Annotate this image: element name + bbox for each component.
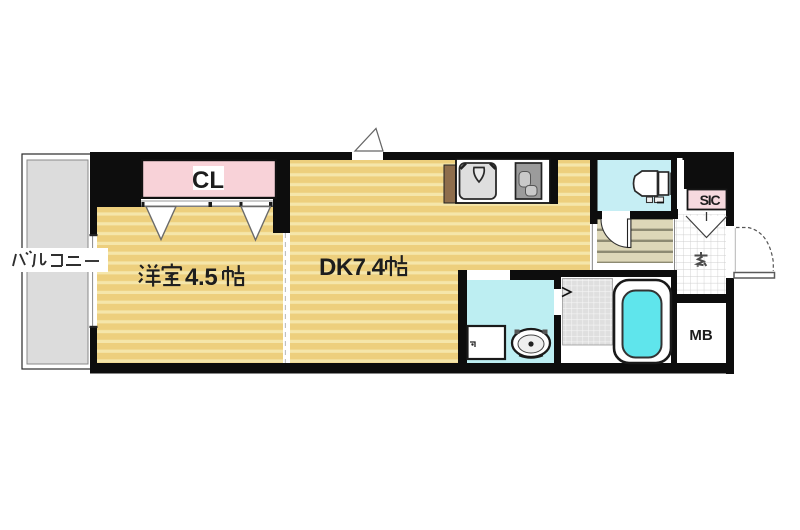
svg-text:DK7.4: DK7.4 [319, 254, 386, 281]
svg-text:SIC: SIC [700, 192, 721, 208]
svg-text:MB: MB [689, 327, 712, 344]
svg-text:CL: CL [192, 167, 224, 194]
svg-text:4.5: 4.5 [185, 264, 217, 291]
